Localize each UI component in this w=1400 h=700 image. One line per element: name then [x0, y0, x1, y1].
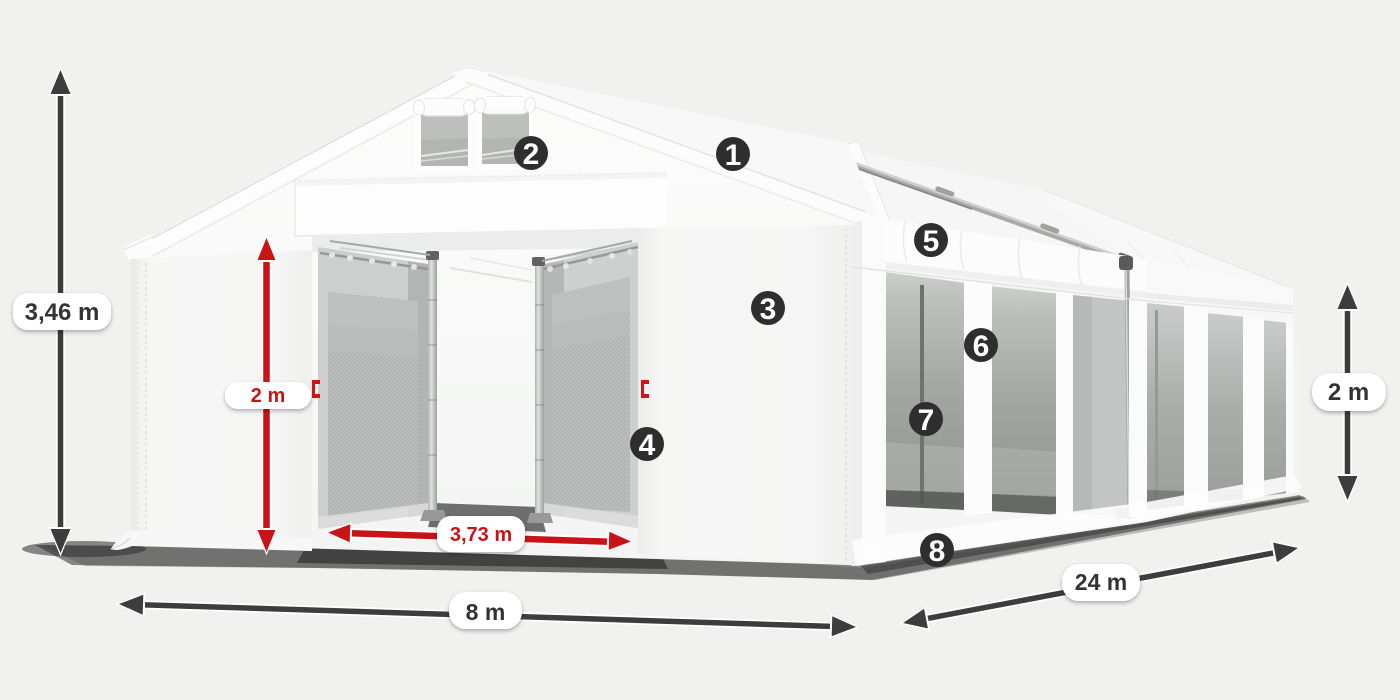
svg-text:2 m: 2 m: [1328, 379, 1369, 406]
svg-text:24 m: 24 m: [1075, 569, 1127, 595]
svg-text:3: 3: [760, 293, 777, 326]
svg-text:1: 1: [725, 139, 742, 172]
svg-text:8 m: 8 m: [466, 599, 506, 625]
svg-text:3,73 m: 3,73 m: [450, 524, 512, 546]
svg-text:3,46 m: 3,46 m: [25, 299, 100, 326]
svg-text:7: 7: [918, 404, 935, 437]
svg-text:2 m: 2 m: [251, 385, 285, 407]
svg-text:4: 4: [639, 429, 656, 462]
svg-text:6: 6: [973, 330, 990, 363]
svg-text:5: 5: [923, 225, 940, 258]
svg-text:2: 2: [523, 138, 540, 171]
svg-text:8: 8: [929, 535, 946, 568]
